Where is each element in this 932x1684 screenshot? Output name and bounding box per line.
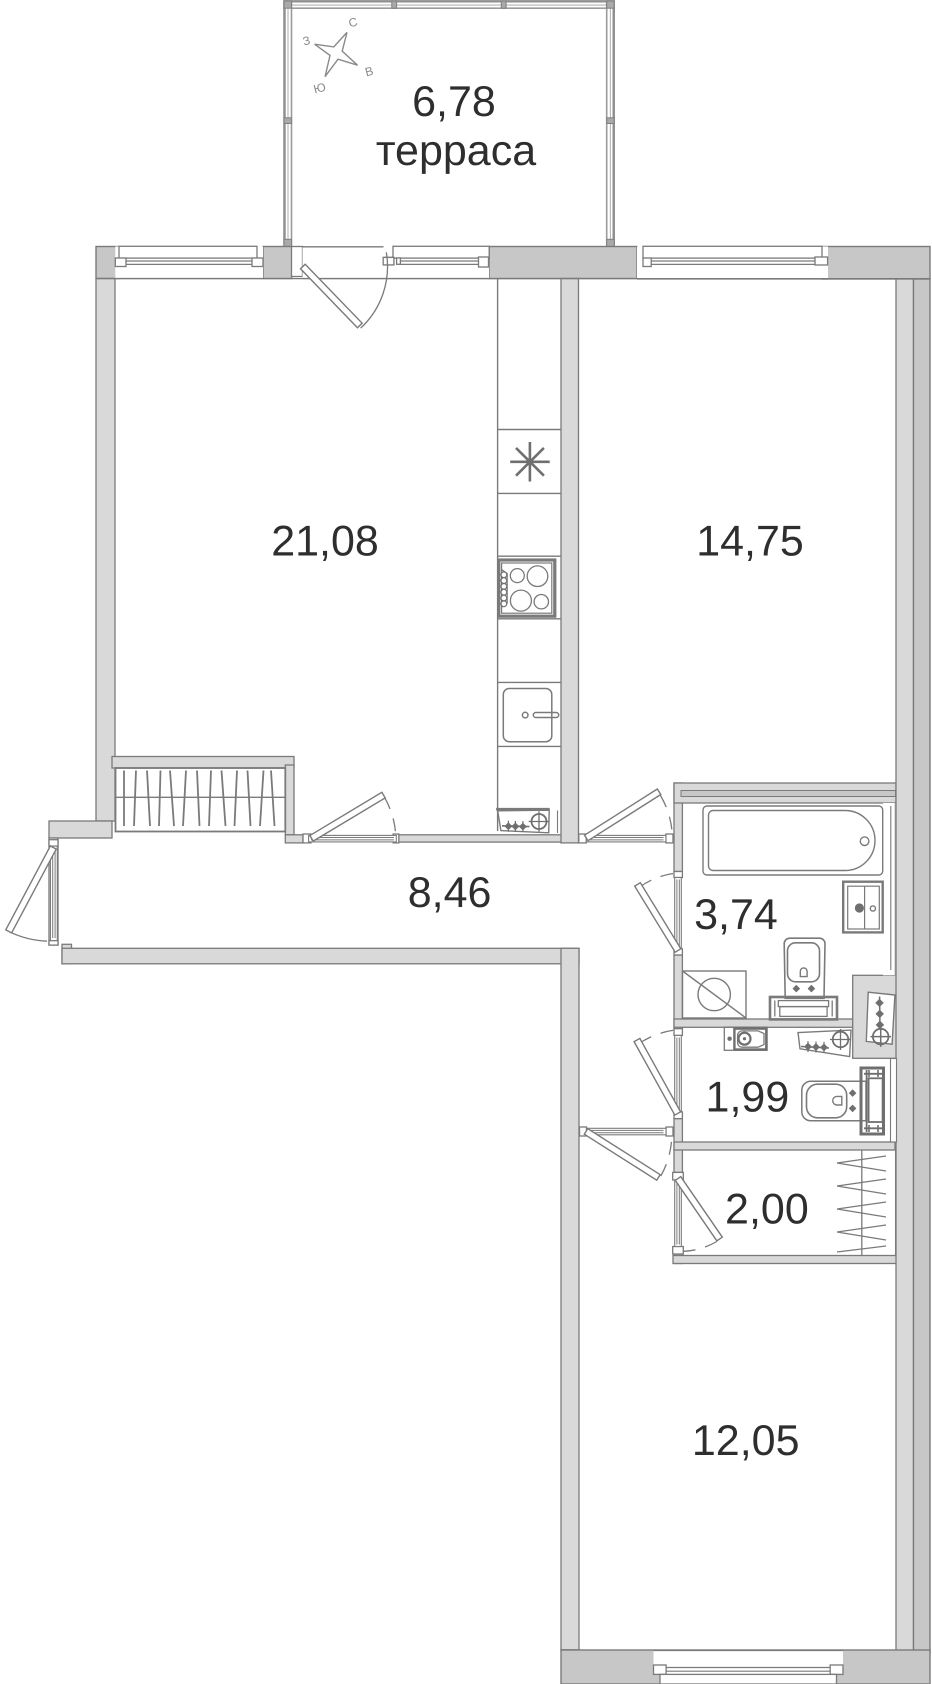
svg-text:14,75: 14,75 (696, 518, 804, 566)
svg-text:2,00: 2,00 (725, 1185, 809, 1233)
svg-text:21,08: 21,08 (271, 518, 379, 566)
svg-text:1,99: 1,99 (706, 1074, 790, 1122)
svg-text:6,78: 6,78 (412, 78, 496, 126)
svg-text:12,05: 12,05 (692, 1417, 800, 1465)
svg-text:терраса: терраса (376, 127, 536, 175)
svg-text:3,74: 3,74 (694, 891, 778, 939)
svg-text:8,46: 8,46 (408, 869, 492, 917)
